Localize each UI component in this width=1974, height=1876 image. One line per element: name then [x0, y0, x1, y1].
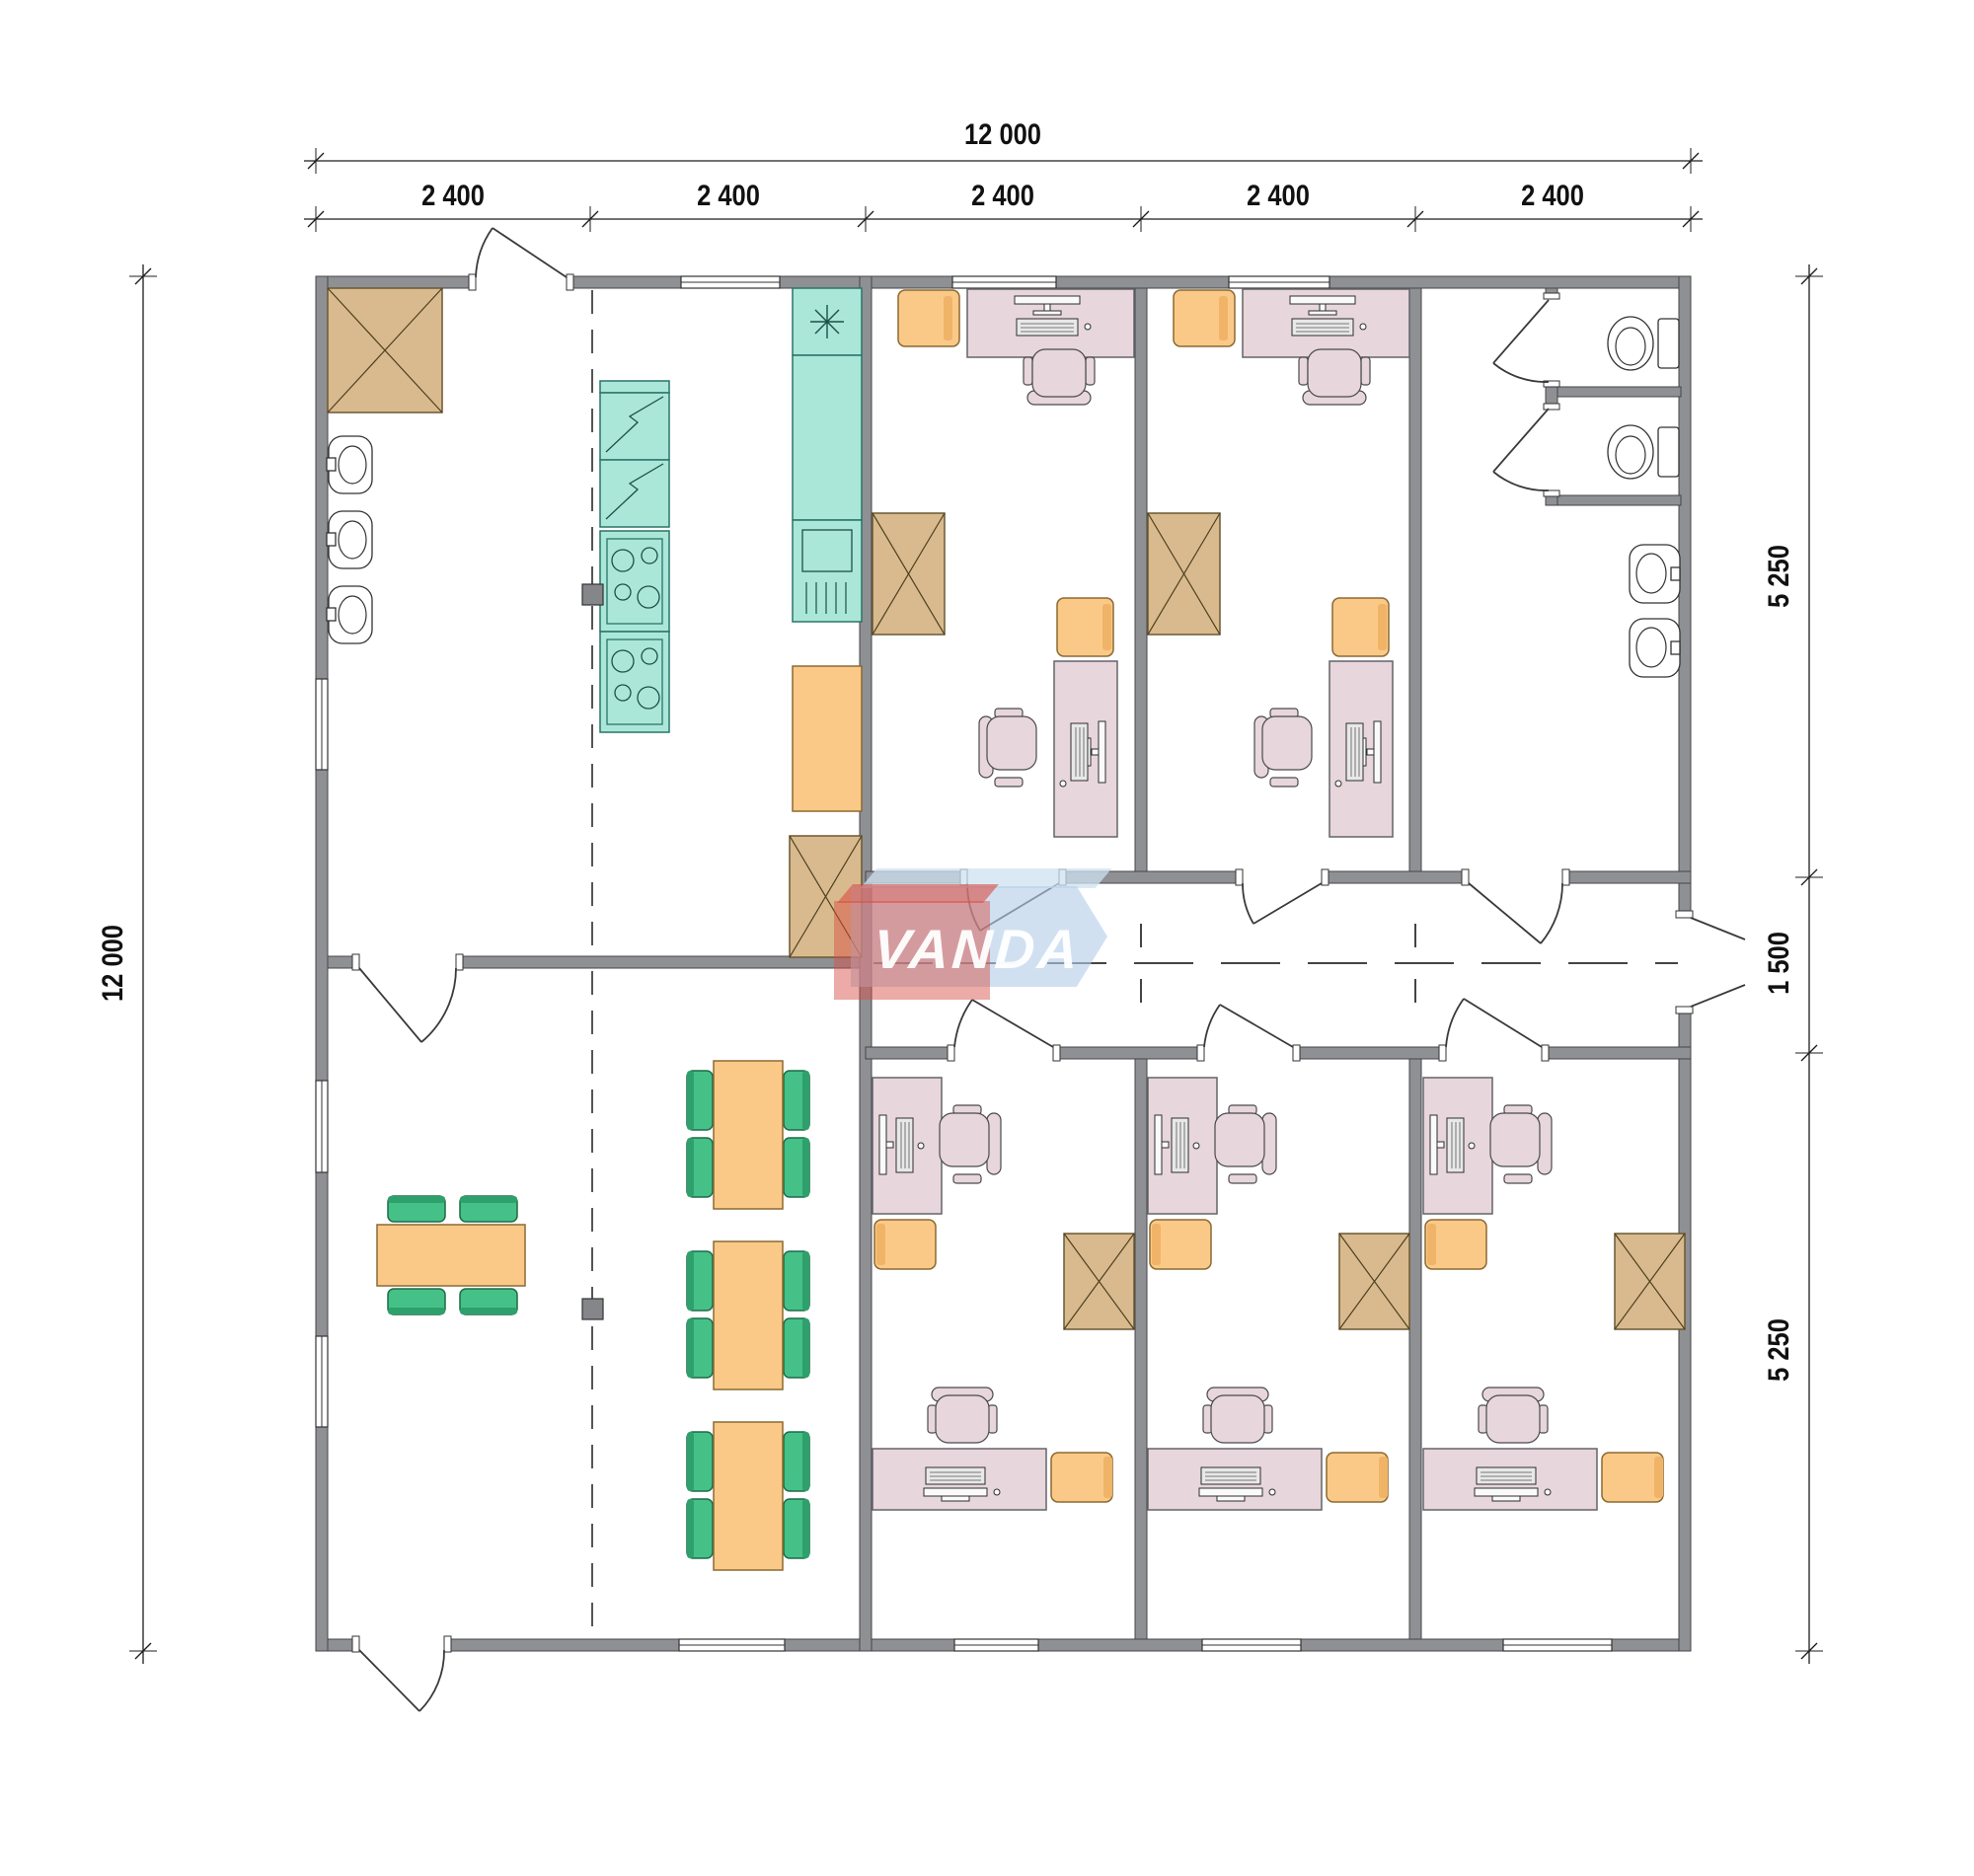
window-bottom-3	[1202, 1639, 1301, 1651]
window-bottom-2	[954, 1639, 1038, 1651]
floor-plan-canvas: 12 000 2 400 2 400 2 400 2 400 2 400 12 …	[0, 0, 1974, 1876]
dim-bay-1: 2 400	[390, 180, 516, 213]
window-top-1	[681, 276, 780, 288]
office-bottom-2	[1148, 1078, 1409, 1510]
wall-office-divider-bottom-2	[1409, 1059, 1421, 1639]
dim-right-2: 1 500	[1763, 879, 1802, 1047]
stove-1	[600, 531, 669, 632]
dining-table-1	[687, 1061, 809, 1209]
wash-basin-1	[327, 436, 372, 493]
wash-basin-2	[327, 511, 372, 568]
dining-table-2	[687, 1241, 809, 1389]
dim-bay-5: 2 400	[1489, 180, 1616, 213]
dining-table-horizontal	[377, 1196, 525, 1314]
dining-table-3	[687, 1422, 809, 1570]
dim-bay-4: 2 400	[1215, 180, 1341, 213]
wall-office-divider-bottom-1	[1135, 1059, 1147, 1639]
fridge-2	[600, 460, 669, 527]
wall-stall-divider-1	[1557, 387, 1681, 397]
dim-right-3: 5 250	[1763, 1266, 1802, 1434]
fridge-1	[600, 393, 669, 460]
kitchen-sink-counter	[793, 288, 862, 622]
worktable	[793, 666, 862, 811]
dim-bay-2: 2 400	[665, 180, 792, 213]
dim-top-total: 12 000	[877, 118, 1129, 152]
office-bottom-1	[873, 1078, 1134, 1510]
window-bottom-1	[679, 1639, 785, 1651]
window-bottom-4	[1503, 1639, 1612, 1651]
washroom-basin-1	[1630, 545, 1680, 603]
office-top-1	[873, 289, 1134, 837]
toilet-1	[1608, 317, 1679, 370]
wash-basin-3	[327, 586, 372, 643]
window-left-3	[316, 1336, 328, 1427]
dim-right-1: 5 250	[1763, 492, 1802, 660]
office-top-2	[1148, 289, 1409, 837]
washroom-basin-2	[1630, 619, 1680, 677]
dim-bay-3: 2 400	[940, 180, 1066, 213]
dim-left-total: 12 000	[97, 879, 136, 1047]
kitchen-storage-cabinet	[790, 836, 862, 957]
kitchen-room	[327, 288, 862, 957]
window-left-1	[316, 679, 328, 770]
kitchen-appliance-column	[600, 381, 669, 732]
wall-left	[316, 276, 328, 1651]
wardrobe-cabinet	[328, 288, 442, 413]
window-left-2	[316, 1081, 328, 1172]
wall-stall-divider-2	[1557, 495, 1681, 505]
floor-plan-svg	[0, 0, 1974, 1876]
window-top-2	[952, 276, 1056, 288]
toilet-2	[1608, 425, 1679, 479]
kitchen-counter	[793, 355, 862, 520]
wall-office-divider-top-2	[1409, 288, 1421, 871]
wall-office-divider-top-1	[1135, 288, 1147, 871]
sink-symbol-asterisk	[810, 305, 844, 338]
window-top-3	[1229, 276, 1329, 288]
stove-2	[600, 632, 669, 732]
office-bottom-3	[1423, 1078, 1685, 1510]
